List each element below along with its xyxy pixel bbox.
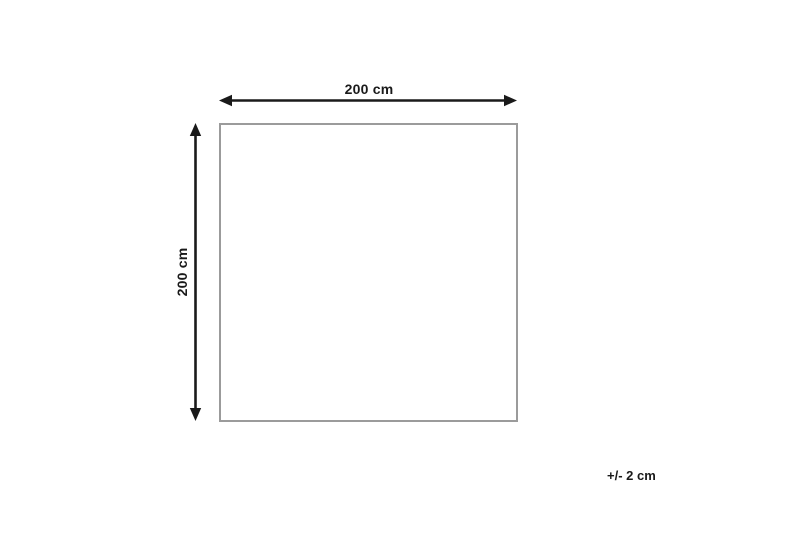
width-dimension-label: 200 cm [345, 81, 394, 97]
product-outline-square [219, 123, 518, 422]
height-dimension-label: 200 cm [174, 248, 190, 297]
dimension-diagram: 200 cm 200 cm +/- 2 cm [0, 0, 800, 533]
height-dimension-arrow [190, 123, 201, 421]
tolerance-label: +/- 2 cm [607, 468, 656, 483]
